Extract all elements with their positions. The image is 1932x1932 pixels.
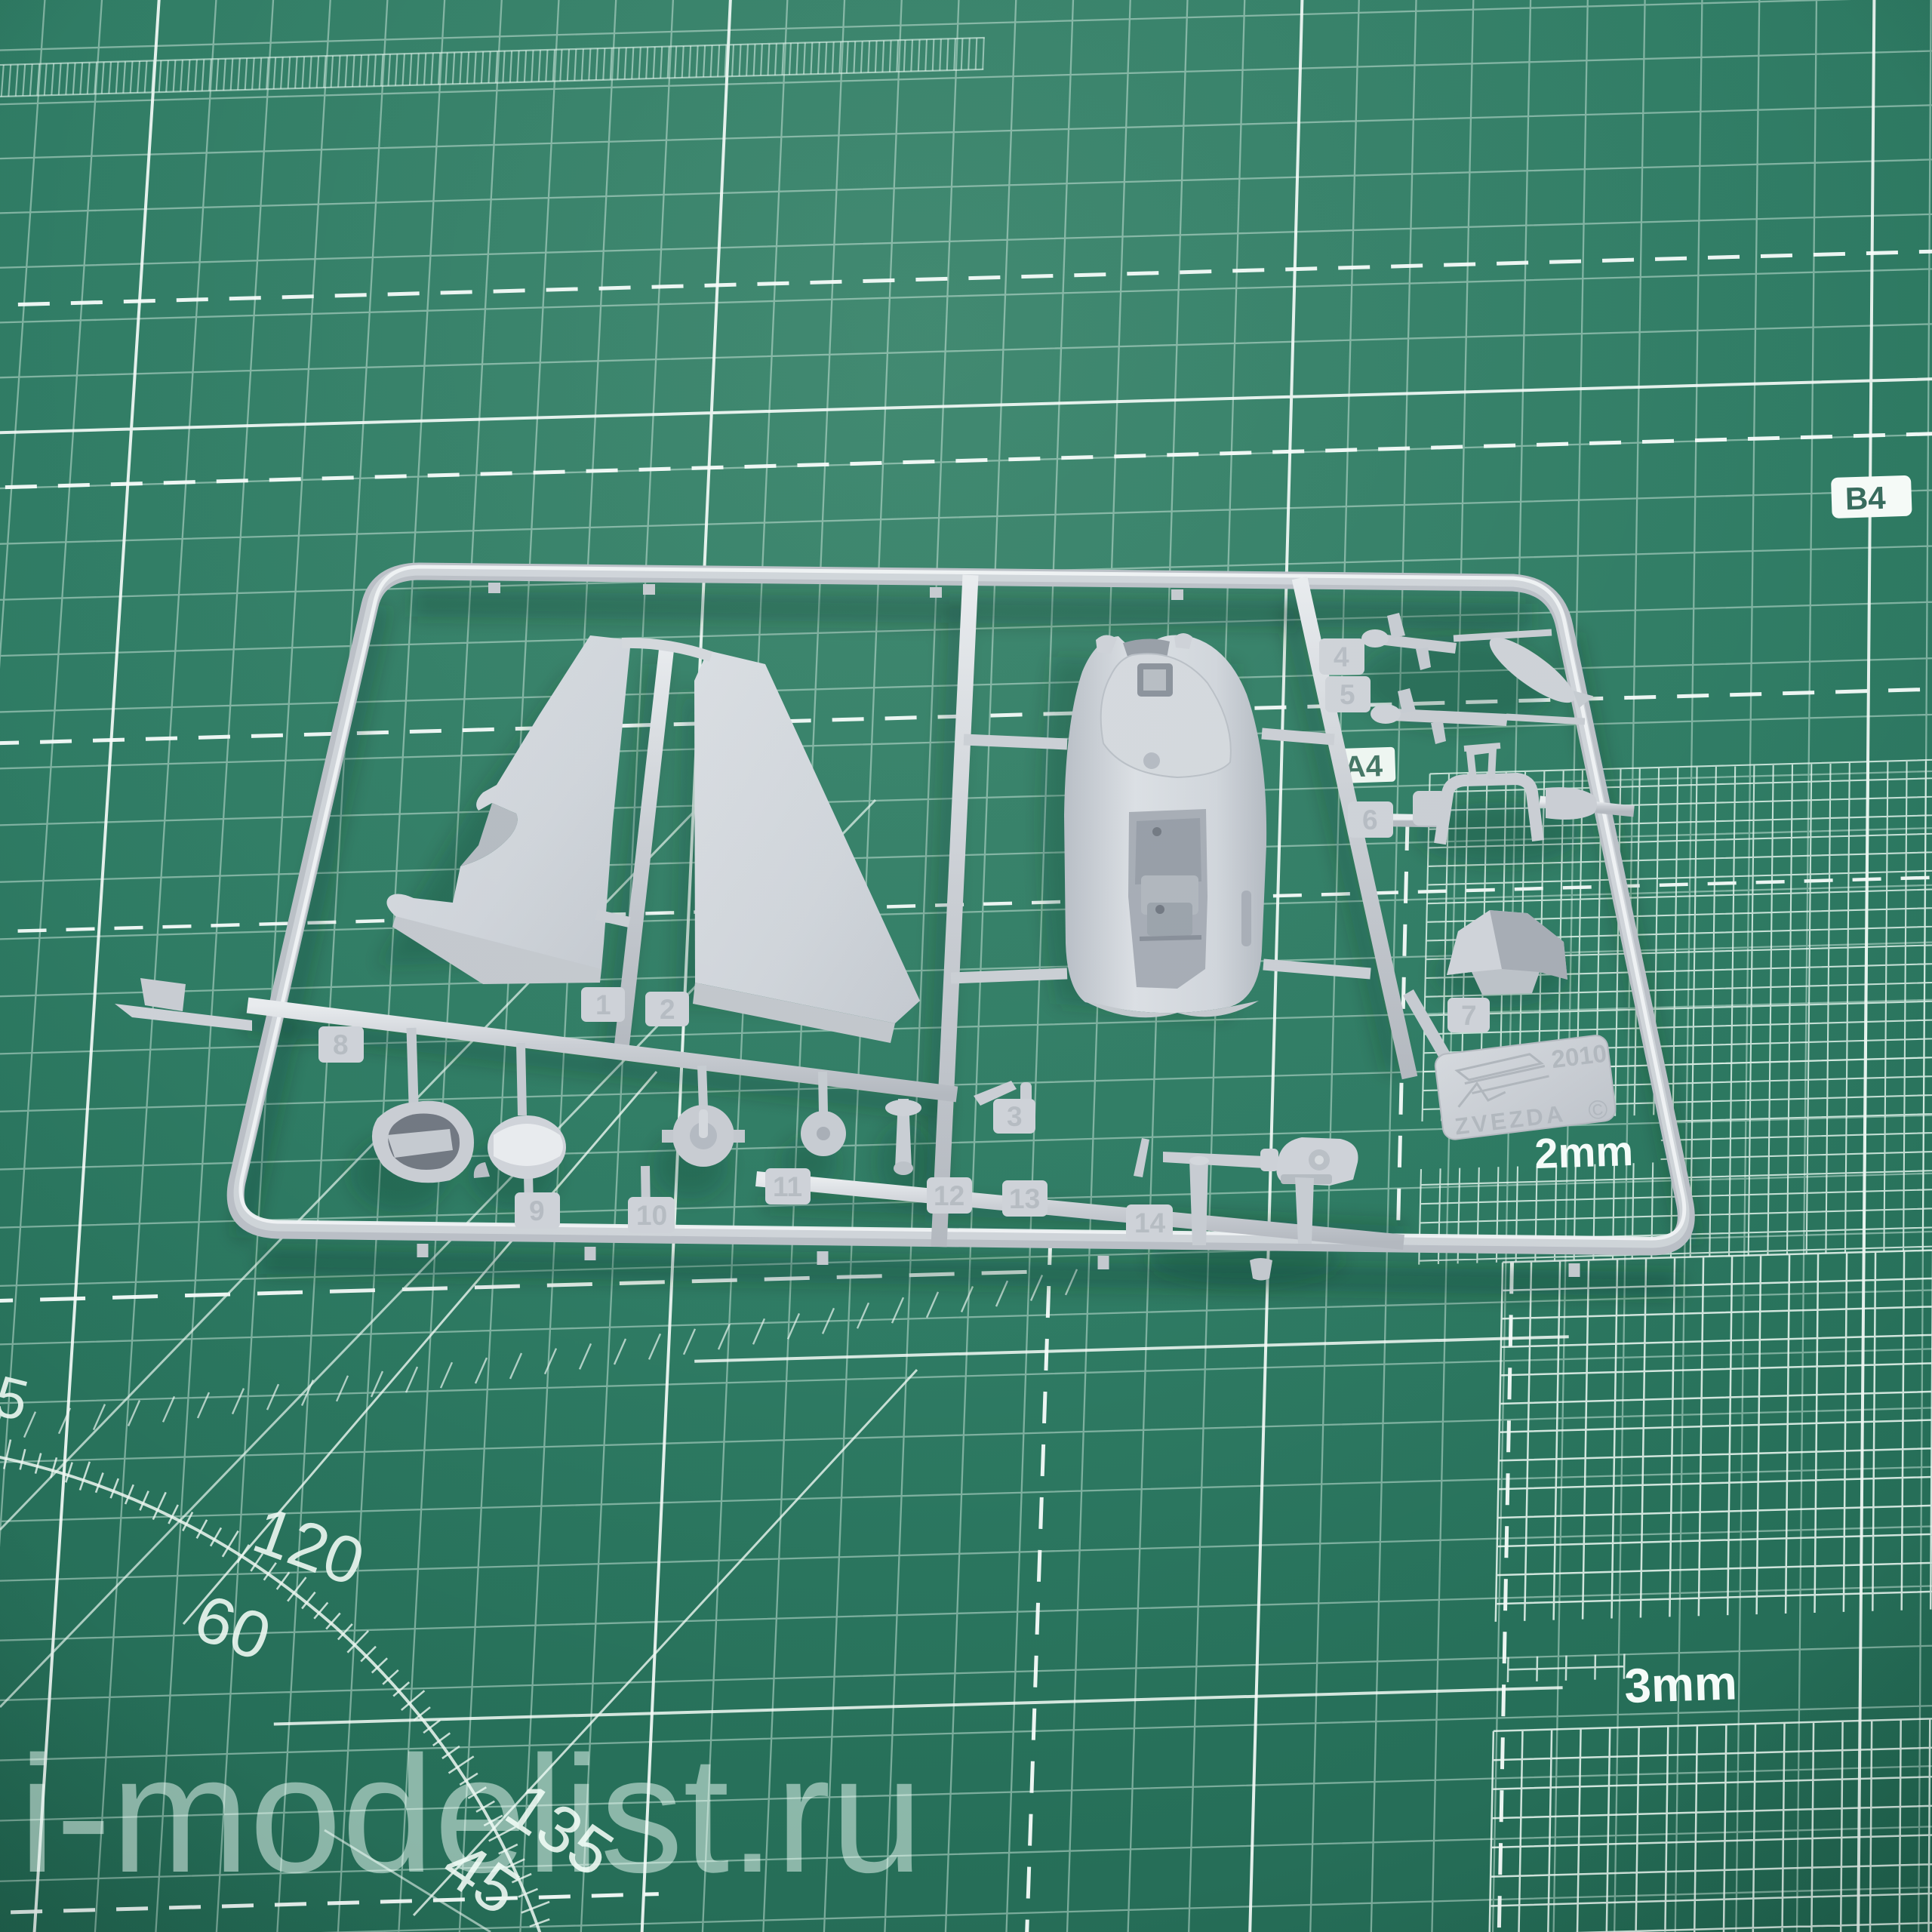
svg-text:i-modelist.ru: i-modelist.ru [19, 1721, 923, 1907]
